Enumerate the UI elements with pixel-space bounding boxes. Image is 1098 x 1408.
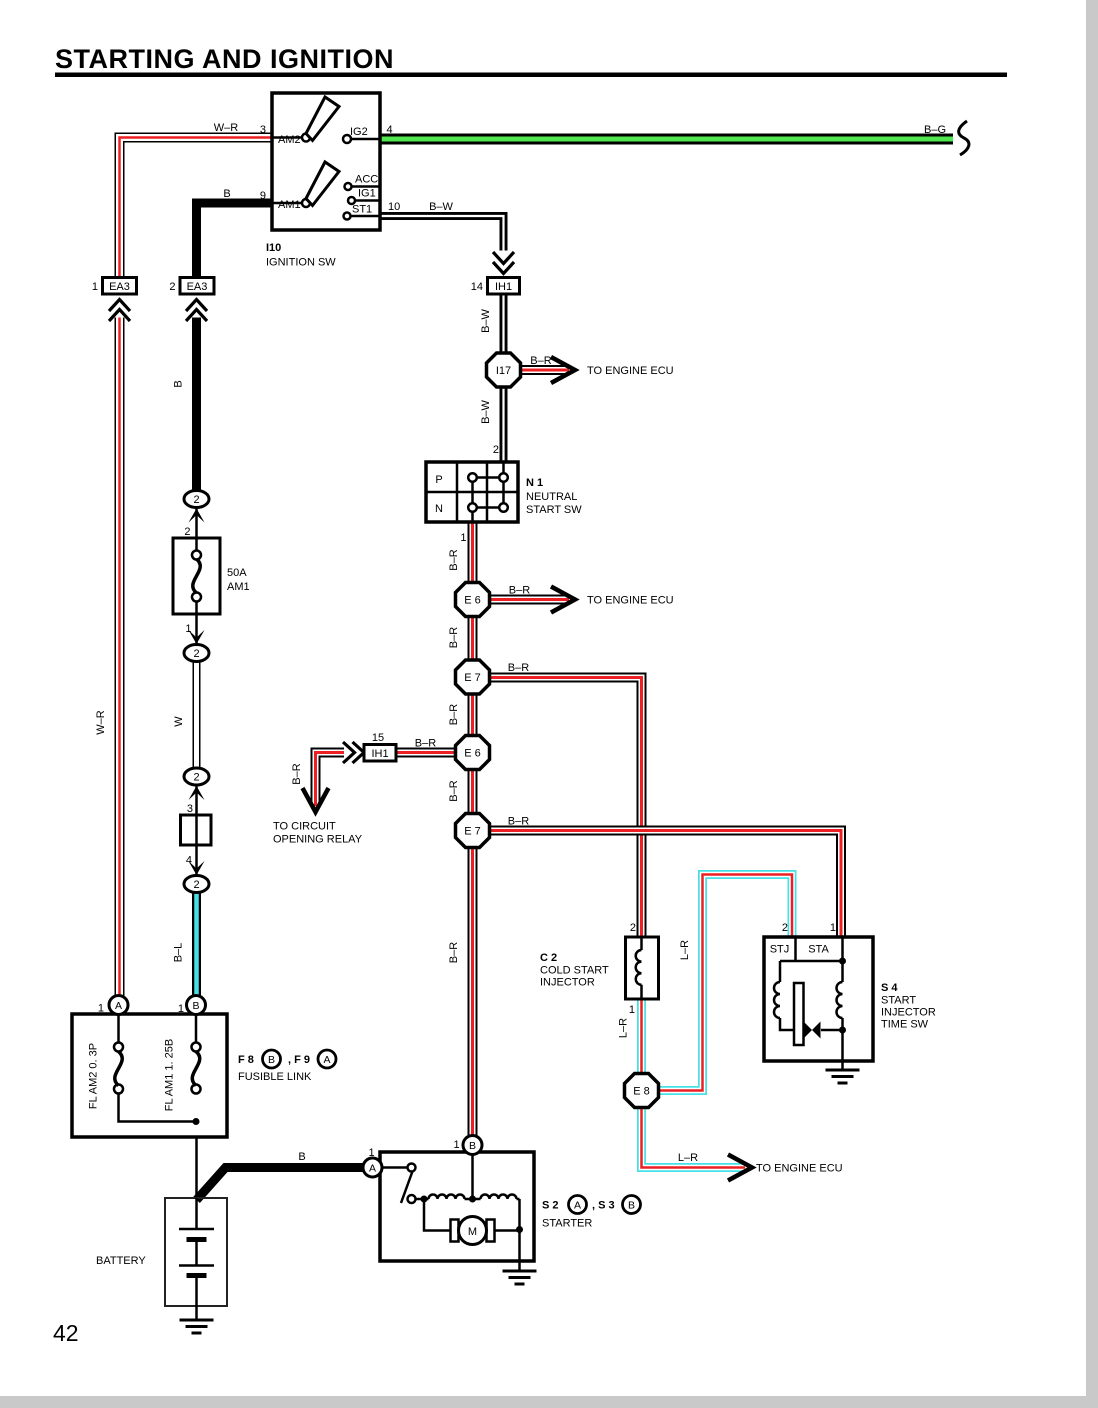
wire-label-b-r-rot1: B–R (448, 549, 460, 570)
connector-ih1-top-label: IH1 (495, 281, 512, 293)
wire-label-b-r-e7a: B–R (508, 662, 529, 674)
s4-name-line3: TIME SW (881, 1019, 929, 1031)
wire-label-b-w-rot1: B–W (480, 308, 492, 332)
wire-label-b-w-top: B–W (429, 201, 453, 213)
connector-chevrons-ih1-top (492, 251, 516, 275)
fusible-link-label: FUSIBLE LINK (238, 1071, 312, 1083)
terminal-ig2-label: IG2 (350, 126, 368, 138)
connector-chevrons-ea3-left (107, 296, 132, 322)
connector-e7-1-label: E 7 (464, 672, 481, 684)
page-edge-bottom (0, 1396, 1098, 1408)
fuse-name: AM1 (227, 581, 250, 593)
badge-a2-letter: A (574, 1200, 581, 1212)
connector-e8-label: E 8 (633, 1086, 650, 1098)
s4-name-line1: START (881, 995, 916, 1007)
ref-s3: , S 3 (592, 1200, 615, 1212)
fusible-link-block: FL AM2 0. 3P FL AM1 1. 25B (72, 1014, 227, 1137)
connector-ih1-mid-pin: 15 (372, 732, 384, 744)
terminal-a-letter: A (115, 1000, 122, 1012)
c2-pin-top: 2 (630, 922, 636, 934)
terminal-a-pin: 1 (98, 1003, 104, 1015)
fusible-link-left-name: FL AM2 0. 3P (88, 1043, 100, 1109)
wire-label-b-r-rot5: B–R (448, 942, 460, 963)
oval-connector-4: 2 (184, 876, 209, 893)
starter-label: STARTER (542, 1218, 592, 1230)
connector-ea3-right-pin: 2 (169, 281, 175, 293)
wire-label-l-r-rot1: L–R (618, 1018, 630, 1038)
oval-connector-2-label: 2 (193, 648, 199, 660)
connector-ea3-left-pin: 1 (92, 281, 98, 293)
wire-label-b-r-rot4: B–R (448, 780, 460, 801)
n1-pin-top: 2 (493, 444, 499, 456)
badge-b2-letter: B (628, 1200, 635, 1212)
wire-label-w-r-rot: W–R (95, 710, 107, 735)
n1-name-line1: NEUTRAL (526, 491, 577, 503)
oval-connector-1-label: 2 (193, 494, 199, 506)
page-background (0, 0, 1098, 1408)
c2-pin-bottom: 1 (629, 1004, 635, 1016)
terminal-sta-label: STA (808, 944, 829, 956)
starter-terminal-a-pin: 1 (368, 1147, 374, 1159)
terminal-acc-label: ACC (355, 174, 378, 186)
pin-10: 10 (388, 201, 400, 213)
connector-e7-2-label: E 7 (464, 826, 481, 838)
wire-label-b-battery: B (298, 1151, 305, 1163)
motor-letter: M (468, 1226, 477, 1238)
pin-above-junction-box: 3 (187, 803, 193, 815)
connector-i17: I17 (487, 353, 521, 387)
s4-pin-sta: 1 (830, 922, 836, 934)
c2-name-line2: INJECTOR (540, 977, 595, 989)
connector-e6-1-label: E 6 (464, 595, 481, 607)
pin-above-fuse: 2 (184, 526, 190, 538)
wire-label-b-r-rot2: B–R (448, 627, 460, 648)
connector-e6-2: E 6 (456, 736, 490, 770)
dest-to-circuit-line1: TO CIRCUIT (273, 821, 336, 833)
component-id-c2: C 2 (540, 952, 557, 964)
terminal-am1-label: AM1 (278, 199, 301, 211)
wire-label-b-r-rot3: B–R (448, 704, 460, 725)
wire-label-b-r-e6: B–R (509, 585, 530, 597)
dest-to-engine-ecu-3: TO ENGINE ECU (756, 1163, 843, 1175)
c2-name-line1: COLD START (540, 965, 609, 977)
s4-name-line2: INJECTOR (881, 1007, 936, 1019)
pin-3: 3 (260, 124, 266, 136)
dest-to-circuit-line2: OPENING RELAY (273, 834, 363, 846)
connector-ih1-top-pin: 14 (471, 281, 483, 293)
junction-dot (193, 1118, 200, 1125)
wire-label-l-r-rot2: L–R (679, 940, 691, 960)
ref-s2: S 2 (542, 1200, 559, 1212)
wire-label-w-r-top: W–R (214, 122, 239, 134)
starter-terminal-b-letter: B (469, 1140, 476, 1152)
fuse-rating: 50A (227, 567, 247, 579)
component-name-ignition-sw: IGNITION SW (266, 257, 336, 269)
contact-st1 (344, 213, 351, 220)
oval-connector-4-label: 2 (193, 879, 199, 891)
page-number: 42 (53, 1320, 79, 1346)
starter-terminal-a-letter: A (369, 1163, 376, 1175)
connector-ea3-left-label: EA3 (109, 281, 130, 293)
dest-to-engine-ecu-2: TO ENGINE ECU (587, 595, 674, 607)
connector-i17-label: I17 (496, 365, 511, 377)
wire-label-w-rot: W (173, 716, 185, 727)
page-title: STARTING AND IGNITION (55, 44, 394, 74)
connector-e6-2-label: E 6 (464, 748, 481, 760)
terminal-ig1-label: IG1 (358, 188, 376, 200)
dest-to-engine-ecu-1: TO ENGINE ECU (587, 365, 674, 377)
page-edge-right (1086, 0, 1098, 1408)
fusible-link-right-name: FL AM1 1. 25B (164, 1039, 176, 1111)
n1-position-p: P (435, 474, 442, 486)
pin-9: 9 (260, 190, 266, 202)
terminal-b-pin: 1 (178, 1003, 184, 1015)
connector-chevrons-ea3-right (184, 296, 209, 322)
badge-b-letter: B (268, 1054, 275, 1066)
wire-label-b-w-rot2: B–W (480, 399, 492, 423)
wire-label-b-top: B (223, 188, 230, 200)
connector-e6-1: E 6 (456, 583, 490, 617)
terminal-b-letter: B (192, 1000, 199, 1012)
wire-label-b-r-e7b: B–R (508, 816, 529, 828)
terminal-st1-label: ST1 (352, 204, 372, 216)
wire-label-b-g: B–G (924, 124, 946, 136)
connector-e8: E 8 (625, 1074, 659, 1108)
ref-f8: F 8 (238, 1054, 254, 1066)
wire-label-b-r-i17: B–R (530, 355, 551, 367)
wire-label-b-l-rot: B–L (173, 943, 185, 963)
wire-label-b-r-relay: B–R (291, 763, 303, 784)
n1-name-line2: START SW (526, 504, 582, 516)
oval-connector-3-label: 2 (193, 772, 199, 784)
battery-label: BATTERY (96, 1255, 146, 1267)
starting-ignition-diagram: AM2 IG2 AM1 ACC IG1 ST1 3 9 4 10 I10 IGN… (0, 0, 1098, 1408)
wiring-diagram-page: AM2 IG2 AM1 ACC IG1 ST1 3 9 4 10 I10 IGN… (0, 0, 1098, 1408)
component-id-s4: S 4 (881, 982, 898, 994)
n1-position-n: N (435, 503, 443, 515)
pin-4: 4 (387, 124, 393, 136)
component-id-n1: N 1 (526, 477, 543, 489)
w-label-l-r-bottom: L–R (678, 1152, 698, 1164)
contact-acc (345, 183, 352, 190)
oval-connector-2: 2 (184, 645, 209, 662)
s4-pin-stj: 2 (782, 922, 788, 934)
bimetal-strip (794, 983, 804, 1045)
connector-ih1-mid-label: IH1 (371, 748, 388, 760)
wire-label-b-rot: B (173, 380, 185, 387)
component-id-i10: I10 (266, 242, 281, 254)
title-underline (55, 73, 1007, 78)
n1-pin-bottom: 1 (460, 532, 466, 544)
badge-a-letter: A (323, 1054, 330, 1066)
starter-terminal-b-pin: 1 (453, 1139, 459, 1151)
wire-label-b-r-ih1: B–R (415, 738, 436, 750)
connector-ea3-right-label: EA3 (187, 281, 208, 293)
connector-e7-1: E 7 (456, 660, 490, 694)
terminal-am2-label: AM2 (278, 134, 301, 146)
connector-e7-2: E 7 (456, 814, 490, 848)
terminal-stj-label: STJ (770, 944, 790, 956)
ref-f9: , F 9 (288, 1054, 310, 1066)
